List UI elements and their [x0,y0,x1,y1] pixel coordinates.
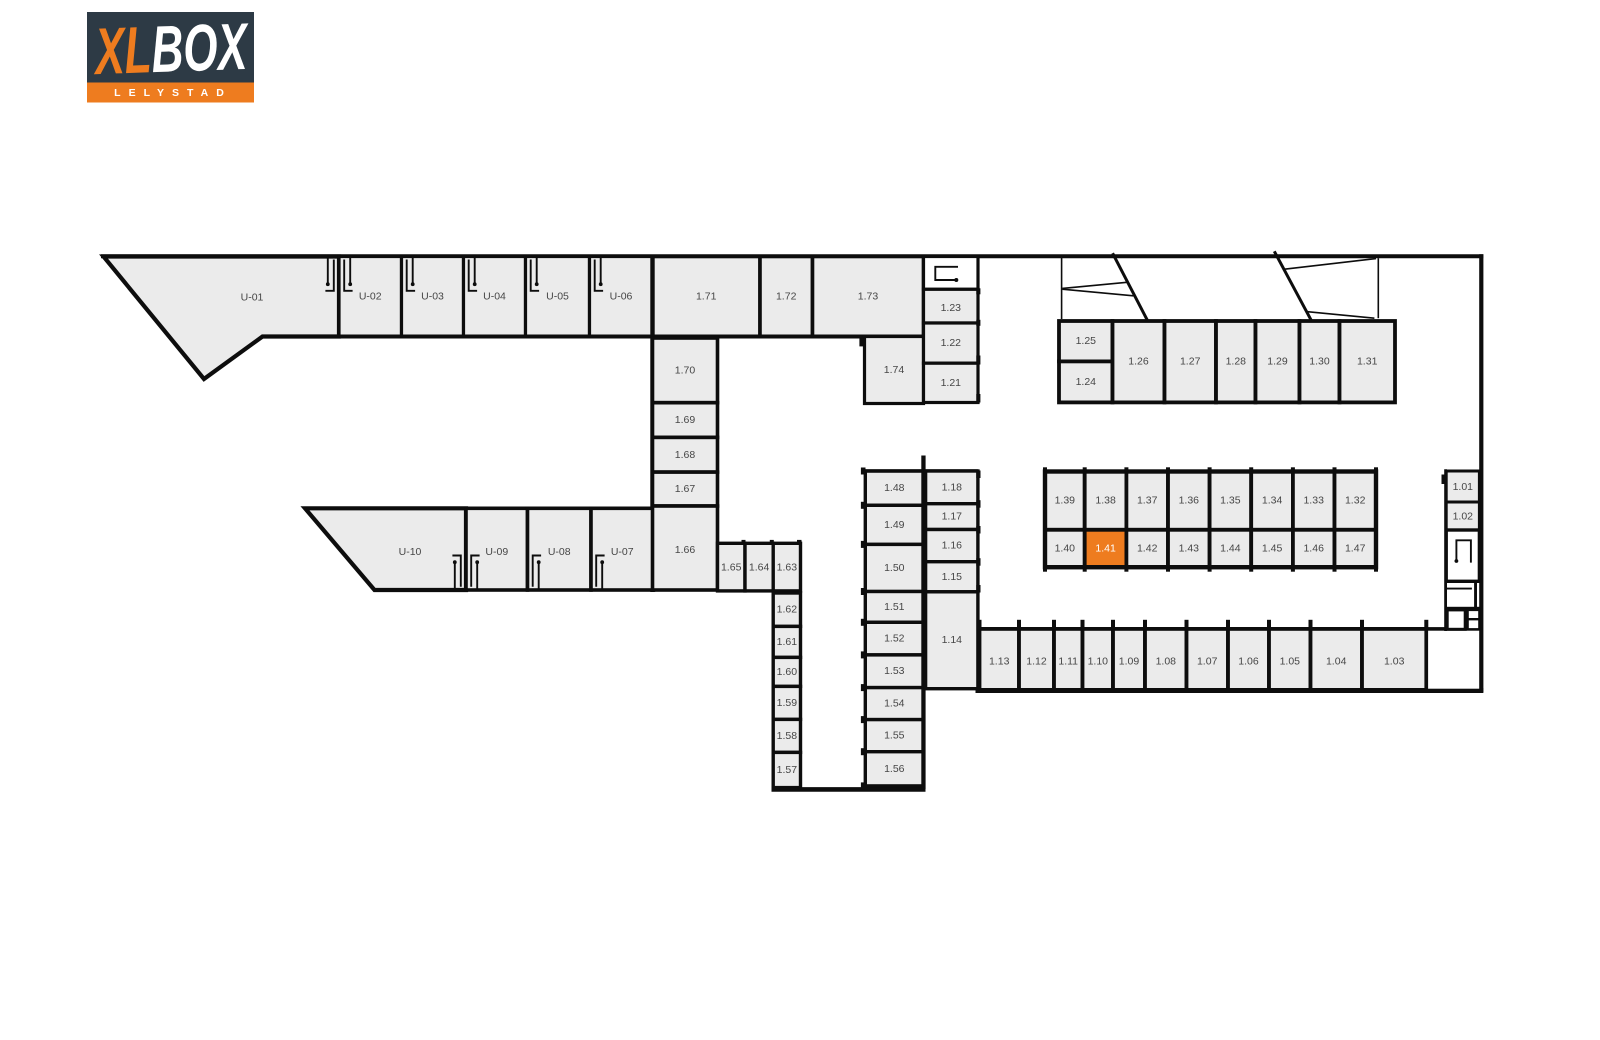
svg-text:1.68: 1.68 [675,449,696,461]
svg-text:1.60: 1.60 [777,666,798,678]
svg-text:U-01: U-01 [241,292,264,304]
svg-text:1.32: 1.32 [1345,495,1366,507]
svg-text:1.08: 1.08 [1156,656,1177,668]
svg-text:1.35: 1.35 [1220,495,1241,507]
svg-text:1.49: 1.49 [884,519,905,531]
svg-text:1.13: 1.13 [989,656,1010,668]
svg-text:U-09: U-09 [485,546,508,558]
svg-text:1.55: 1.55 [884,730,905,742]
svg-text:1.28: 1.28 [1226,356,1247,368]
svg-text:LELYSTAD: LELYSTAD [114,87,232,99]
svg-text:1.04: 1.04 [1326,656,1347,668]
svg-text:1.36: 1.36 [1179,495,1200,507]
svg-text:1.69: 1.69 [675,414,696,426]
svg-text:U-04: U-04 [483,291,506,303]
svg-text:1.58: 1.58 [777,730,798,742]
svg-text:1.61: 1.61 [777,636,798,648]
svg-text:1.06: 1.06 [1238,656,1259,668]
svg-text:1.50: 1.50 [884,562,905,574]
svg-text:1.72: 1.72 [776,291,797,303]
svg-text:1.16: 1.16 [942,540,963,552]
svg-text:1.39: 1.39 [1055,495,1076,507]
svg-text:1.05: 1.05 [1280,656,1301,668]
svg-text:1.09: 1.09 [1119,656,1140,668]
svg-text:1.21: 1.21 [941,377,962,389]
svg-text:1.34: 1.34 [1262,495,1283,507]
svg-text:1.26: 1.26 [1128,356,1149,368]
svg-text:1.71: 1.71 [696,291,717,303]
svg-text:1.41: 1.41 [1095,543,1116,555]
svg-text:1.30: 1.30 [1309,356,1330,368]
svg-text:1.51: 1.51 [884,601,905,613]
svg-text:1.12: 1.12 [1026,656,1047,668]
svg-text:U-05: U-05 [546,291,569,303]
svg-text:1.64: 1.64 [749,561,770,573]
svg-text:1.10: 1.10 [1088,656,1109,668]
svg-text:1.57: 1.57 [777,764,798,776]
svg-text:1.11: 1.11 [1058,656,1078,668]
svg-text:1.44: 1.44 [1220,543,1241,555]
svg-text:1.02: 1.02 [1453,511,1474,523]
svg-text:1.23: 1.23 [941,302,962,314]
svg-text:1.53: 1.53 [884,665,905,677]
svg-text:1.03: 1.03 [1384,656,1405,668]
svg-text:1.38: 1.38 [1095,495,1116,507]
svg-text:1.63: 1.63 [777,561,798,573]
svg-text:1.70: 1.70 [675,364,696,376]
svg-text:1.74: 1.74 [884,364,905,376]
svg-text:1.40: 1.40 [1055,543,1076,555]
svg-text:1.46: 1.46 [1303,543,1324,555]
svg-text:1.25: 1.25 [1076,335,1097,347]
svg-text:1.24: 1.24 [1076,376,1097,388]
svg-text:1.52: 1.52 [884,633,905,645]
svg-text:1.18: 1.18 [942,481,963,493]
svg-text:1.42: 1.42 [1137,543,1158,555]
svg-text:1.29: 1.29 [1267,356,1288,368]
svg-text:XLBOX: XLBOX [91,9,251,88]
svg-text:1.56: 1.56 [884,763,905,775]
svg-text:1.27: 1.27 [1180,356,1201,368]
svg-text:1.14: 1.14 [942,634,963,646]
svg-text:1.73: 1.73 [858,291,879,303]
svg-text:1.66: 1.66 [675,544,696,556]
svg-text:1.62: 1.62 [777,604,798,616]
svg-text:1.47: 1.47 [1345,543,1366,555]
svg-text:1.37: 1.37 [1137,495,1158,507]
svg-text:1.33: 1.33 [1303,495,1324,507]
svg-text:1.45: 1.45 [1262,543,1283,555]
svg-text:U-02: U-02 [359,291,382,303]
svg-text:1.01: 1.01 [1453,481,1474,493]
svg-text:1.67: 1.67 [675,483,696,495]
svg-text:1.31: 1.31 [1357,356,1378,368]
svg-text:U-06: U-06 [610,291,633,303]
svg-text:1.22: 1.22 [941,337,962,349]
svg-text:1.54: 1.54 [884,698,905,710]
svg-text:U-03: U-03 [421,291,444,303]
svg-text:1.65: 1.65 [721,561,742,573]
svg-text:1.59: 1.59 [777,697,798,709]
svg-text:1.43: 1.43 [1179,543,1200,555]
svg-text:1.07: 1.07 [1197,656,1218,668]
svg-text:U-08: U-08 [548,546,571,558]
svg-text:1.17: 1.17 [942,511,963,523]
svg-text:U-07: U-07 [611,546,634,558]
svg-text:1.48: 1.48 [884,482,905,494]
svg-text:1.15: 1.15 [942,571,963,583]
svg-text:U-10: U-10 [399,546,422,558]
